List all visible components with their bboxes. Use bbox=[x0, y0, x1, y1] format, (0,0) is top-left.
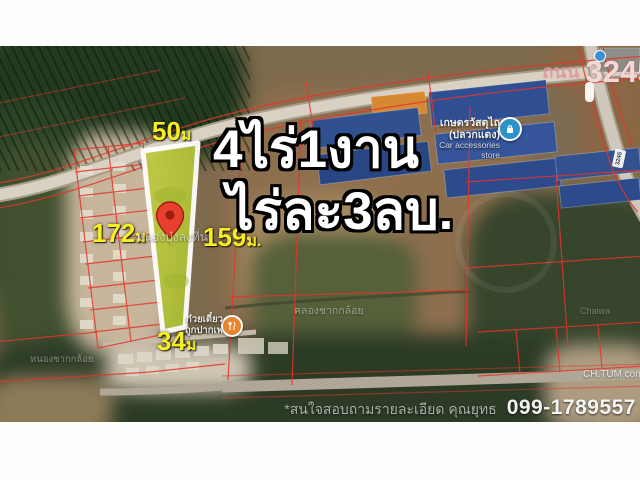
road-name-watermark: หนองบุ๋งลงที่น bbox=[136, 228, 208, 247]
place-label: Chaiwa bbox=[580, 306, 610, 316]
top-white-band bbox=[0, 0, 640, 46]
dimension-top: 50ม bbox=[152, 118, 192, 144]
store-label: เกษตรวัสดุไถ (ปลวกแดง) Car accessories s… bbox=[428, 117, 500, 161]
shopping-bag-icon bbox=[504, 123, 516, 135]
company-label: CH.TUM constru bbox=[583, 369, 640, 380]
restaurant-label: ก๋วยเตี๋ยว ถูกปากเพ bbox=[168, 315, 223, 337]
contact-line: *สนใจสอบถามรายละเอียด คุณยุทธ 099-178955… bbox=[284, 396, 636, 421]
contact-note: *สนใจสอบถามรายละเอียด คุณยุทธ bbox=[284, 399, 496, 421]
pond-label: หนองชากกล้อย bbox=[30, 352, 93, 367]
poi-marker-small bbox=[594, 50, 606, 62]
contact-phone: 099-1789557 bbox=[507, 396, 636, 420]
restaurant-marker-icon bbox=[221, 315, 243, 337]
bottom-white-band bbox=[0, 422, 640, 480]
listing-price-text: ไร่ละ3ลบ. bbox=[227, 182, 453, 241]
canal-label: คลองชากกล้อย bbox=[294, 302, 364, 319]
fork-knife-icon bbox=[227, 321, 237, 331]
photo-watermark bbox=[455, 191, 557, 293]
listing-area-text: 4ไร่1งาน bbox=[213, 120, 419, 179]
land-listing-image: 50ม 172ม 159ม. 34ม 4ไร่1งาน ไร่ละ3ลบ. ถน… bbox=[0, 0, 640, 480]
road-marker-pill bbox=[585, 82, 594, 102]
store-marker-icon bbox=[498, 117, 522, 141]
road-word: ถนน bbox=[542, 57, 579, 90]
